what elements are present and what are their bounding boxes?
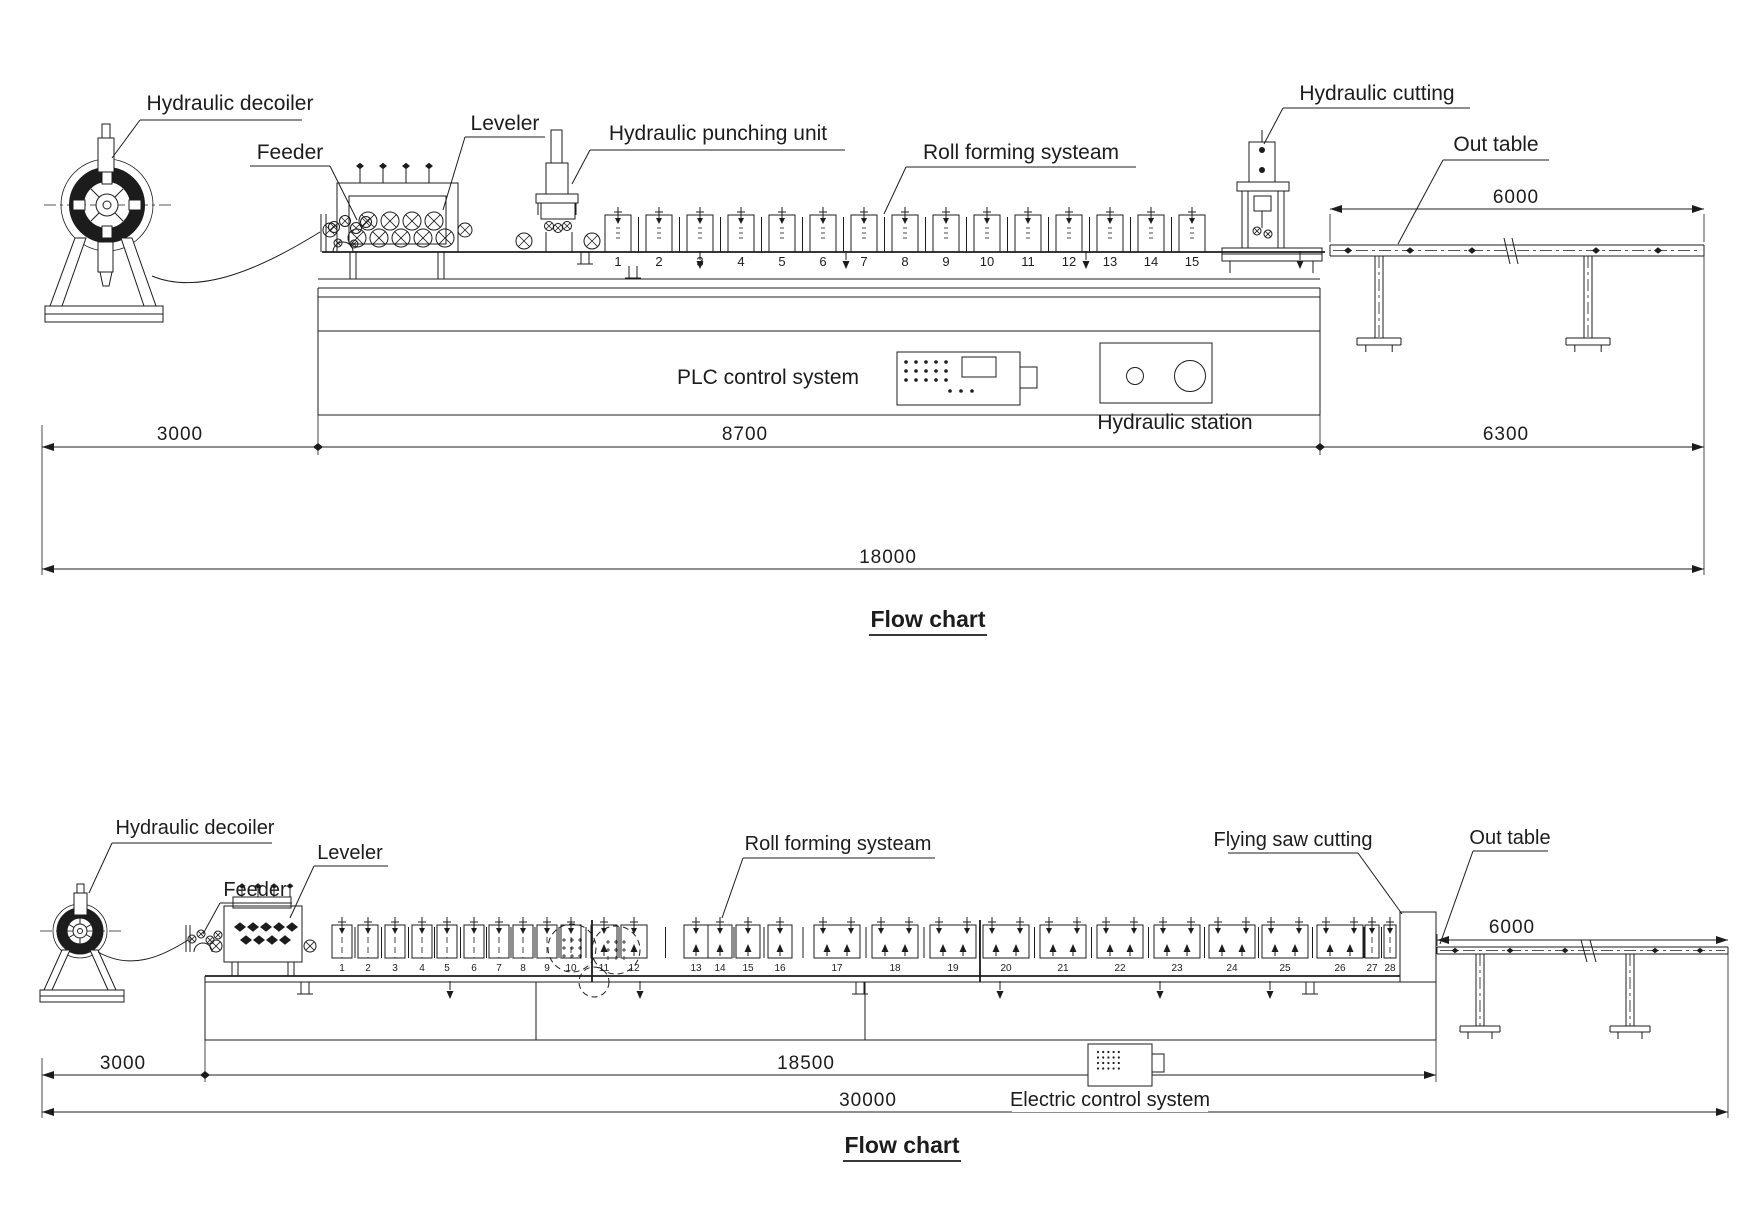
roll-station: 23 — [1154, 917, 1205, 974]
station-number: 8 — [520, 963, 526, 974]
callout-roll-forming-top: Roll forming systeam — [884, 141, 1136, 214]
station-number: 3 — [392, 963, 398, 974]
roll-station: 16 — [768, 917, 803, 974]
plc-control-system: PLC control system — [677, 352, 1037, 405]
station-number: 15 — [1185, 254, 1199, 269]
station-number: 7 — [496, 963, 502, 974]
dimension-row-top: 3000 8700 6300 18000 — [42, 205, 1704, 575]
station-number: 11 — [1021, 254, 1035, 269]
station-number: 18 — [889, 963, 901, 974]
station-number: 14 — [714, 963, 726, 974]
out-table-label: Out table — [1453, 133, 1538, 156]
caption-bottom: Flow chart — [843, 1132, 961, 1161]
punching-discs — [548, 924, 640, 997]
station-number: 15 — [742, 963, 754, 974]
roll-station: 1 — [332, 917, 355, 974]
station-number: 12 — [1062, 254, 1076, 269]
hydraulic-cutting-label: Hydraulic cutting — [1299, 82, 1454, 105]
roll-forming-stations: 123456789101112131415 — [605, 207, 1205, 269]
callout-feeder-top: Feeder — [250, 141, 357, 220]
bottom-flow-diagram: 1234567891011121314151617181920212223242… — [40, 817, 1728, 1161]
station-number: 1 — [614, 254, 621, 269]
station-number: 4 — [419, 963, 425, 974]
station-number: 1 — [339, 963, 345, 974]
steel-strip-2 — [98, 940, 188, 961]
plc-label: PLC control system — [677, 366, 859, 389]
roll-station: 2 — [646, 207, 680, 269]
roll-station: 25 — [1262, 917, 1313, 974]
out-table-figure-2 — [1437, 940, 1728, 1039]
roll-station: 3 — [385, 917, 409, 974]
machine-bed-2 — [205, 976, 1436, 1040]
feeder-label: Feeder — [257, 141, 324, 164]
station-number: 22 — [1114, 963, 1126, 974]
roll-station: 12 — [621, 917, 666, 974]
roll-forming-label-2: Roll forming systeam — [745, 833, 932, 855]
roll-station: 8 — [892, 207, 926, 269]
station-number: 21 — [1057, 963, 1069, 974]
hydraulic-station-label: Hydraulic station — [1097, 411, 1252, 434]
out-table-figure — [1330, 238, 1704, 352]
leveler-label: Leveler — [471, 112, 540, 135]
callout-roll-forming-bottom: Roll forming systeam — [722, 833, 935, 918]
roll-station: 11 — [1015, 207, 1049, 269]
callout-leveler-bottom: Leveler — [290, 842, 388, 918]
electric-control-label: Electric control system — [1010, 1089, 1210, 1111]
roll-station: 18 — [872, 917, 924, 974]
station-number: 12 — [628, 963, 640, 974]
station-number: 2 — [655, 254, 662, 269]
roll-station: 10 — [974, 207, 1008, 269]
dimension-6000-bottom: 6000 — [1437, 917, 1728, 946]
roll-station: 14 — [708, 917, 734, 974]
roll-forming-stations-2: 1234567891011121314151617181920212223242… — [332, 917, 1396, 974]
station-number: 10 — [980, 254, 994, 269]
roll-station: 28 — [1384, 917, 1396, 974]
roll-station: 5 — [769, 207, 803, 269]
station-number: 4 — [737, 254, 744, 269]
roll-station: 6 — [810, 207, 844, 269]
roll-station: 4 — [412, 917, 435, 974]
hydraulic-decoiler-figure-2 — [40, 884, 124, 1002]
feeder-figure-2 — [186, 925, 222, 952]
station-number: 5 — [444, 963, 450, 974]
roll-station: 26 — [1317, 917, 1364, 974]
dimension-6000-top: 6000 — [1330, 187, 1704, 242]
station-number: 6 — [819, 254, 826, 269]
station-number: 6 — [471, 963, 477, 974]
roll-station: 6 — [464, 917, 487, 974]
dim-8700: 8700 — [722, 424, 768, 445]
feeder-label-2: Feeder — [223, 879, 287, 901]
leveler-label-2: Leveler — [317, 842, 383, 864]
roll-station: 27 — [1365, 917, 1382, 974]
flying-saw-label: Flying saw cutting — [1214, 829, 1373, 851]
rail-marks-2 — [297, 981, 1318, 999]
roll-forming-label: Roll forming systeam — [923, 141, 1119, 164]
flying-saw-figure — [1400, 912, 1436, 982]
roll-station: 7 — [489, 917, 511, 974]
station-number: 24 — [1226, 963, 1238, 974]
dim-30000: 30000 — [839, 1090, 897, 1111]
dim-out-table-bottom: 6000 — [1489, 917, 1535, 938]
caption-top: Flow chart — [869, 606, 987, 635]
station-number: 25 — [1279, 963, 1291, 974]
station-number: 16 — [774, 963, 786, 974]
station-number: 9 — [942, 254, 949, 269]
hydraulic-station: Hydraulic station — [1097, 343, 1252, 434]
roll-station: 12 — [1056, 207, 1090, 269]
station-number: 5 — [778, 254, 785, 269]
roll-station: 2 — [358, 917, 382, 974]
station-number: 20 — [1000, 963, 1012, 974]
flow-chart-title-top: Flow chart — [870, 606, 985, 632]
station-number: 28 — [1384, 963, 1396, 974]
dimension-row-bottom: 3000 18500 30000 — [42, 936, 1728, 1118]
station-number: 13 — [1103, 254, 1117, 269]
station-number: 8 — [901, 254, 908, 269]
station-number: 19 — [947, 963, 959, 974]
station-number: 17 — [831, 963, 843, 974]
dim-3000-top: 3000 — [157, 424, 203, 445]
flow-chart-title-bottom: Flow chart — [844, 1132, 959, 1158]
roll-station: 4 — [728, 207, 762, 269]
dim-3000-bottom: 3000 — [100, 1053, 146, 1074]
station-number: 3 — [696, 254, 703, 269]
electric-control-system: Electric control system — [1010, 1044, 1210, 1112]
roll-station: 1 — [605, 207, 639, 269]
callout-punching-unit: Hydraulic punching unit — [572, 122, 845, 184]
station-number: 9 — [544, 963, 550, 974]
punching-unit-label: Hydraulic punching unit — [609, 122, 827, 145]
roll-station: 22 — [1097, 917, 1149, 974]
roll-station: 8 — [513, 917, 535, 974]
station-number: 27 — [1366, 963, 1378, 974]
top-flow-diagram: 123456789101112131415 — [42, 82, 1704, 635]
dim-18500: 18500 — [777, 1053, 835, 1074]
roll-station: 3 — [687, 207, 721, 269]
dim-6300: 6300 — [1483, 424, 1529, 445]
callout-flying-saw: Flying saw cutting — [1214, 829, 1402, 914]
hydraulic-decoiler-figure — [44, 124, 172, 322]
out-table-label-2: Out table — [1469, 827, 1550, 849]
station-number: 2 — [365, 963, 371, 974]
roll-station: 15 — [1179, 207, 1205, 269]
roll-station: 24 — [1209, 917, 1259, 974]
roll-station: 17 — [814, 917, 866, 974]
drawing-svg: 123456789101112131415 — [0, 0, 1748, 1228]
roll-station: 13 — [684, 917, 708, 974]
station-number: 10 — [565, 963, 577, 974]
station-number: 13 — [690, 963, 702, 974]
decoiler-label: Hydraulic decoiler — [147, 92, 314, 115]
station-number: 7 — [860, 254, 867, 269]
roll-station: 20 — [983, 917, 1035, 974]
roll-station: 13 — [1097, 207, 1131, 269]
roll-station: 19 — [930, 917, 980, 974]
roll-station: 14 — [1138, 207, 1172, 269]
machine-flow-chart-drawing: 123456789101112131415 — [0, 0, 1748, 1228]
roll-station: 5 — [437, 917, 461, 974]
station-number: 26 — [1334, 963, 1346, 974]
punching-unit-figure — [516, 130, 600, 252]
steel-strip — [152, 232, 320, 283]
dim-18000: 18000 — [859, 547, 917, 568]
roll-station: 9 — [933, 207, 967, 269]
callout-hydraulic-cutting: Hydraulic cutting — [1264, 82, 1470, 144]
decoiler-label-2: Hydraulic decoiler — [116, 817, 275, 839]
station-number: 14 — [1144, 254, 1158, 269]
roll-station: 21 — [1040, 917, 1092, 974]
dim-out-table-top: 6000 — [1493, 187, 1539, 208]
roll-station: 7 — [851, 207, 885, 269]
station-number: 23 — [1171, 963, 1183, 974]
roll-station: 15 — [736, 917, 764, 974]
